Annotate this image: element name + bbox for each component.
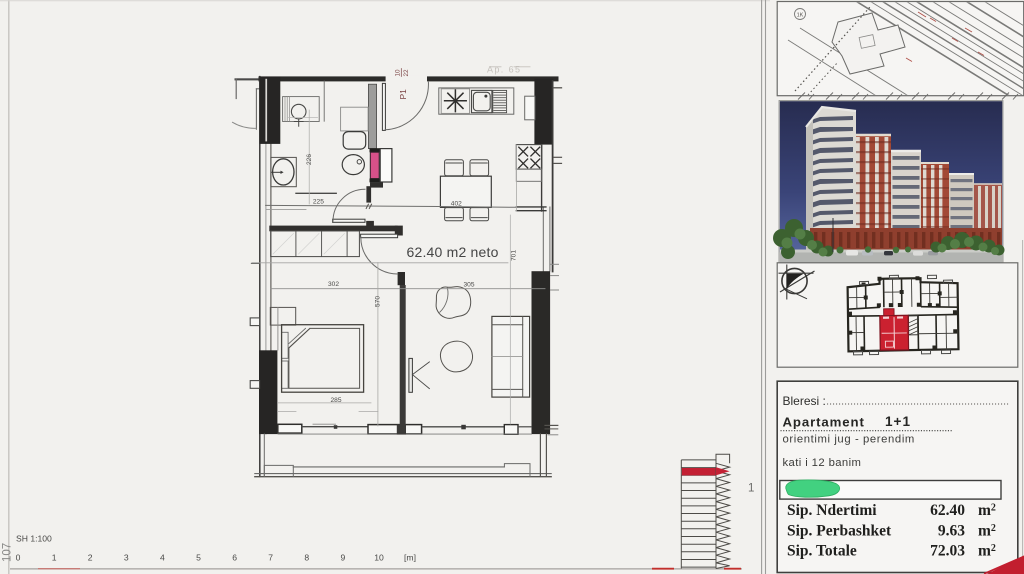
svg-text:[m]: [m] — [404, 553, 416, 563]
svg-text:Bleresi :: Bleresi : — [783, 394, 826, 408]
svg-text:orientimi jug - perendim: orientimi jug - perendim — [783, 434, 915, 446]
svg-text:701: 701 — [511, 250, 518, 261]
svg-text:SH 1:100: SH 1:100 — [16, 534, 52, 544]
svg-text:402: 402 — [451, 201, 462, 208]
svg-text:302: 302 — [328, 281, 339, 288]
svg-text:10: 10 — [374, 553, 384, 563]
svg-text:kati i 12 banim: kati i 12 banim — [783, 457, 862, 469]
svg-text:2: 2 — [88, 553, 93, 563]
svg-text:305: 305 — [464, 282, 475, 289]
svg-text:Sip. Totale: Sip. Totale — [787, 543, 857, 560]
svg-text:1: 1 — [748, 483, 754, 495]
svg-text:9.63: 9.63 — [938, 522, 965, 539]
svg-text:P1: P1 — [398, 89, 408, 100]
svg-text:72.03: 72.03 — [930, 543, 965, 560]
svg-text:Sip. Perbashket: Sip. Perbashket — [787, 522, 892, 539]
svg-text:1+1: 1+1 — [885, 414, 911, 429]
svg-text:6: 6 — [232, 553, 237, 563]
svg-text:7: 7 — [268, 553, 273, 563]
svg-text:Apartament: Apartament — [783, 414, 865, 429]
svg-text:10: 10 — [395, 69, 402, 77]
svg-text:62.40 m2 neto: 62.40 m2 neto — [407, 244, 499, 260]
svg-text:Ap. 65: Ap. 65 — [487, 64, 521, 74]
svg-text:3: 3 — [124, 553, 129, 563]
svg-text:107: 107 — [2, 543, 14, 562]
svg-text:Sip. Ndertimi: Sip. Ndertimi — [787, 502, 877, 519]
svg-text:1: 1 — [52, 553, 57, 563]
svg-text:5: 5 — [196, 553, 201, 563]
svg-text:225: 225 — [313, 198, 324, 205]
svg-text:0: 0 — [16, 553, 21, 563]
svg-text:9: 9 — [341, 553, 346, 563]
svg-text:4: 4 — [160, 553, 165, 563]
svg-text:8: 8 — [304, 553, 309, 563]
svg-text:285: 285 — [331, 397, 342, 404]
svg-text:1K: 1K — [797, 12, 804, 18]
svg-text:226: 226 — [306, 154, 313, 165]
svg-text:62.40: 62.40 — [930, 502, 965, 519]
svg-text:22: 22 — [403, 69, 410, 77]
svg-text:570: 570 — [375, 296, 382, 307]
